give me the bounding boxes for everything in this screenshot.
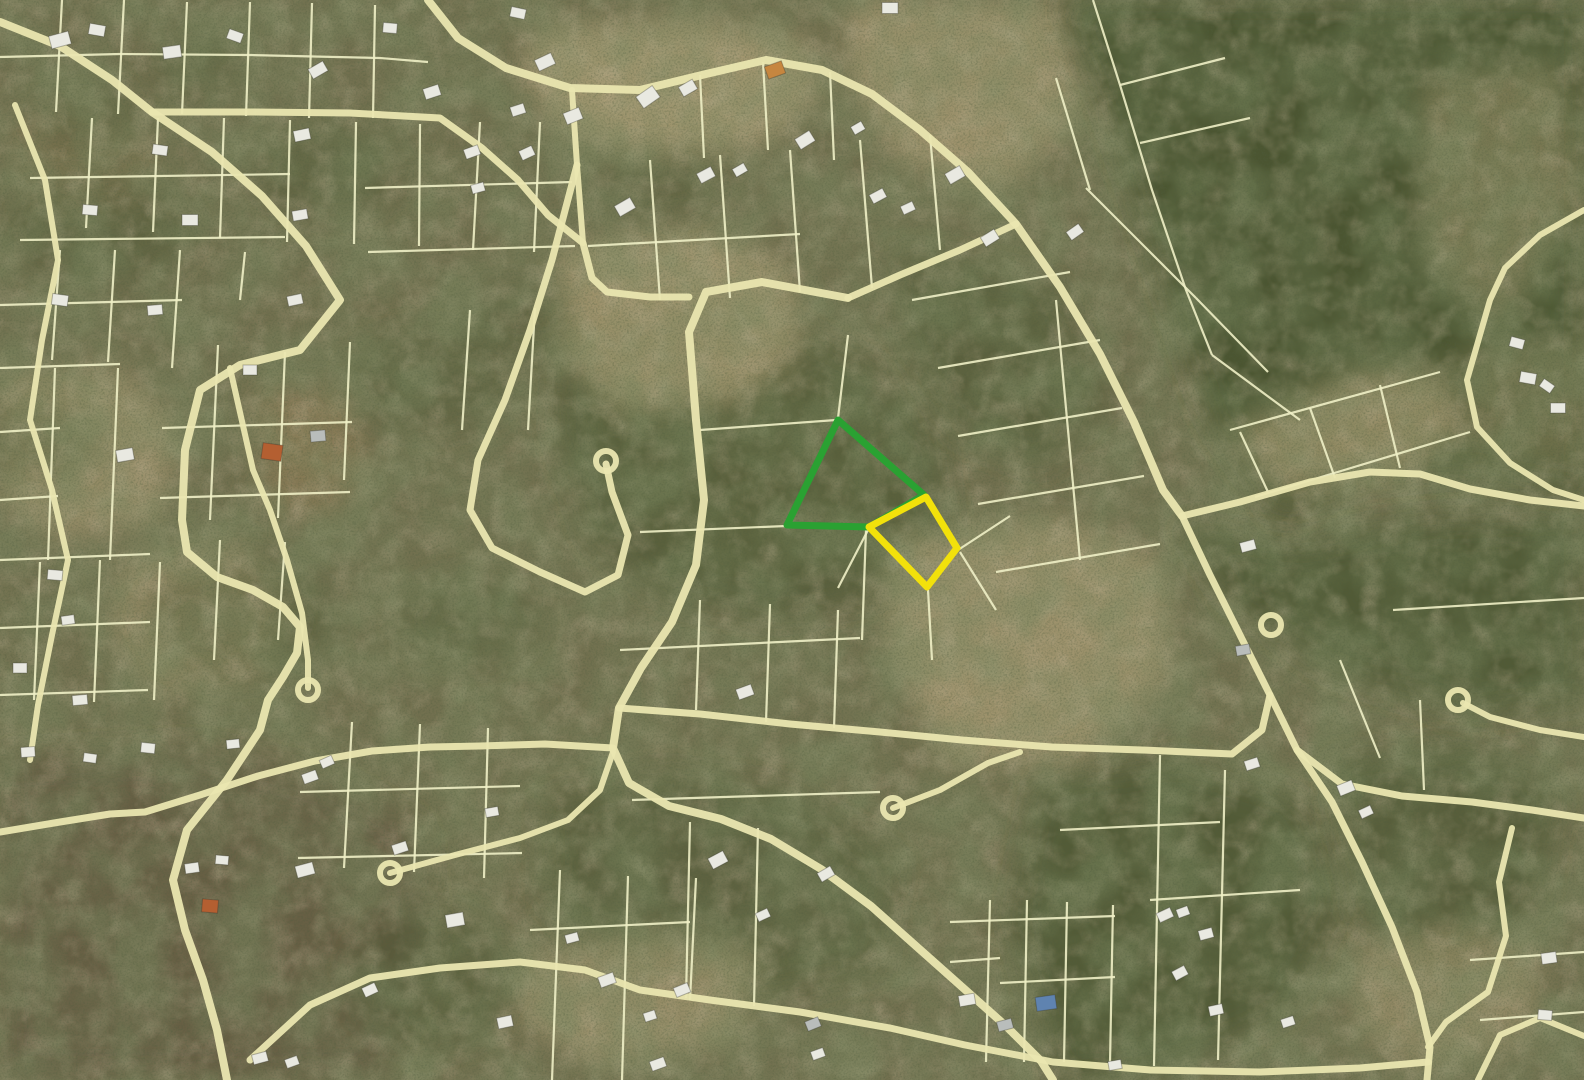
building-rooftop <box>485 806 499 817</box>
map-viewport[interactable] <box>0 0 1584 1080</box>
parcel-boundary-line <box>419 124 420 246</box>
building-rooftop <box>51 293 68 306</box>
building-rooftop <box>83 753 97 764</box>
building-rooftop <box>958 993 976 1007</box>
building-rooftop <box>1035 995 1057 1012</box>
building-rooftop <box>61 615 75 626</box>
building-rooftop <box>72 694 88 705</box>
building-rooftop <box>882 3 898 14</box>
building-rooftop <box>88 23 106 37</box>
building-rooftop <box>292 209 309 221</box>
building-rooftop <box>383 22 398 33</box>
building-rooftop <box>1519 371 1537 385</box>
aerial-map-canvas[interactable] <box>0 0 1584 1080</box>
building-rooftop <box>141 742 156 753</box>
building-rooftop <box>1538 1009 1553 1020</box>
building-rooftop <box>13 663 27 673</box>
building-rooftop <box>1208 1004 1224 1017</box>
building-rooftop <box>82 204 98 215</box>
building-rooftop <box>182 215 198 226</box>
building-rooftop <box>201 899 218 913</box>
building-rooftop <box>445 912 465 928</box>
building-rooftop <box>21 747 36 758</box>
building-rooftop <box>1235 644 1251 656</box>
building-rooftop <box>184 862 199 874</box>
building-rooftop <box>243 365 257 375</box>
building-rooftop <box>162 45 181 59</box>
building-rooftop <box>226 739 240 749</box>
building-rooftop <box>47 569 63 580</box>
terrain-noise-speckle <box>0 0 1584 1080</box>
building-rooftop <box>497 1015 514 1029</box>
building-rooftop <box>147 304 163 315</box>
building-rooftop <box>152 144 168 156</box>
building-rooftop <box>310 430 326 442</box>
building-rooftop <box>1551 403 1566 413</box>
building-rooftop <box>116 448 135 463</box>
building-rooftop <box>261 443 283 462</box>
building-rooftop <box>1541 952 1557 965</box>
building-rooftop <box>215 855 229 865</box>
building-rooftop <box>1108 1059 1122 1070</box>
terrain-texture-layer <box>0 0 1584 1080</box>
